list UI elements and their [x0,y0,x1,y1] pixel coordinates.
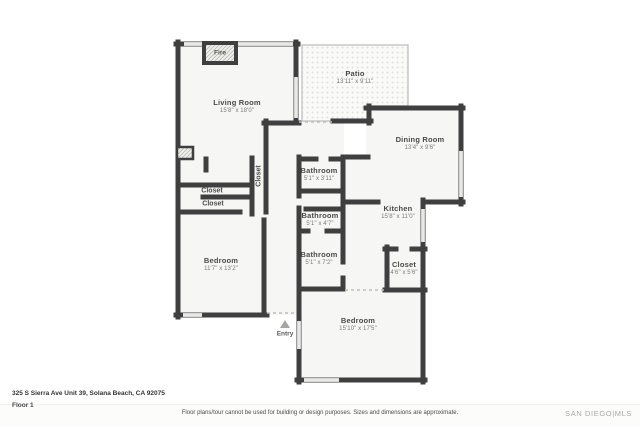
property-address: 325 S Sierra Ave Unit 39, Solana Beach, … [12,390,165,397]
room-name: Kitchen [384,204,413,213]
disclaimer-text: Floor plans/tour cannot be used for buil… [0,410,640,416]
room-label-bathroom-1: Bathroom 5'1" x 3'11" [300,166,337,182]
floor-number: Floor 1 [12,402,34,409]
room-label-bathroom-3: Bathroom 5'1" x 7'2" [300,250,337,266]
room-name: Bathroom [301,211,338,220]
room-name: Patio [345,69,364,78]
closet-label-vertical: Closet [256,165,263,186]
room-label-bedroom-left: Bedroom 11'7" x 13'2" [204,256,238,272]
room-name: Bathroom [300,250,337,259]
room-dims: 5'1" x 7'2" [305,260,332,266]
wall-vent-icon [177,147,193,159]
room-dims: 15'8" x 11'0" [381,214,415,220]
room-label-closet-br: Closet 4'6" x 5'6" [390,260,417,276]
room-dims: 13'11" x 9'11" [337,79,374,85]
room-label-patio: Patio 13'11" x 9'11" [337,69,374,85]
room-dims: 15'10" x 17'5" [339,326,377,332]
room-dims: 5'1" x 3'11" [304,176,334,182]
room-dims: 4'6" x 5'6" [390,270,417,276]
fireplace-label: Fire [214,50,226,57]
room-name: Dining Room [396,135,445,144]
room-label-bedroom-bottom: Bedroom 15'10" x 17'5" [339,316,377,332]
room-name: Living Room [213,98,261,107]
entry-arrow-icon [280,320,290,328]
mls-brand-logo: SAN DIEGO|MLS [565,409,632,418]
floorplan-page: Living Room 15'8" x 18'0" Patio 13'11" x… [0,0,640,427]
entry-label: Entry [277,331,294,338]
closet-label-2: Closet [202,201,223,208]
room-label-dining-room: Dining Room 13'4" x 9'6" [396,135,445,151]
room-dims: 13'4" x 9'6" [405,145,436,151]
room-name: Bathroom [300,166,337,175]
room-name: Bedroom [341,316,375,325]
room-name: Closet [392,260,416,269]
room-label-kitchen: Kitchen 15'8" x 11'0" [381,204,415,220]
room-dims: 11'7" x 13'2" [204,266,238,272]
room-dims: 5'1" x 4'7" [306,221,333,227]
room-label-living-room: Living Room 15'8" x 18'0" [213,98,261,114]
room-name: Bedroom [204,256,238,265]
room-label-bathroom-2: Bathroom 5'1" x 4'7" [301,211,338,227]
room-dims: 15'8" x 18'0" [220,108,254,114]
closet-label-1: Closet [201,188,222,195]
